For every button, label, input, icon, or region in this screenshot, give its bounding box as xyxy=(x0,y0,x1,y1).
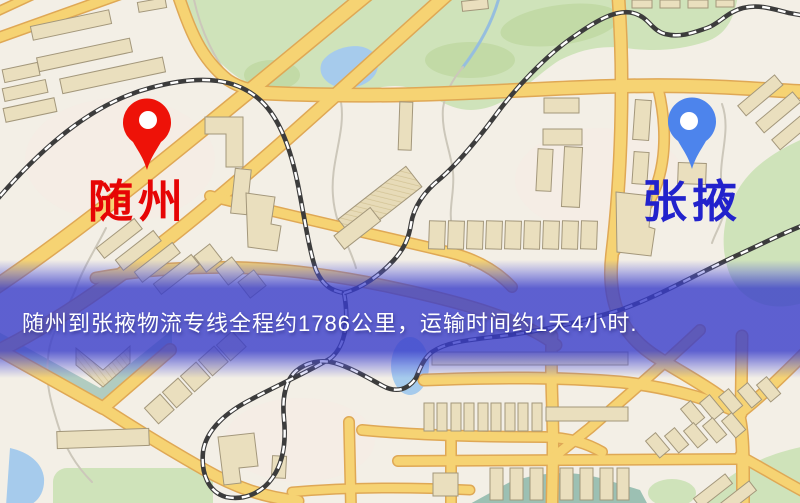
map-canvas[interactable] xyxy=(0,0,800,503)
origin-city-label: 随州 xyxy=(88,180,188,225)
route-info-banner: 随州到张掖物流专线全程约1786公里，运输时间约1天4小时. xyxy=(0,260,800,378)
destination-city-label: 张掖 xyxy=(642,180,742,225)
route-info-text: 随州到张掖物流专线全程约1786公里，运输时间约1天4小时. xyxy=(22,306,638,338)
route-map: 随州 张掖 随州到张掖物流专线全程约1786公里，运输时间约1天4小时. xyxy=(0,0,800,503)
